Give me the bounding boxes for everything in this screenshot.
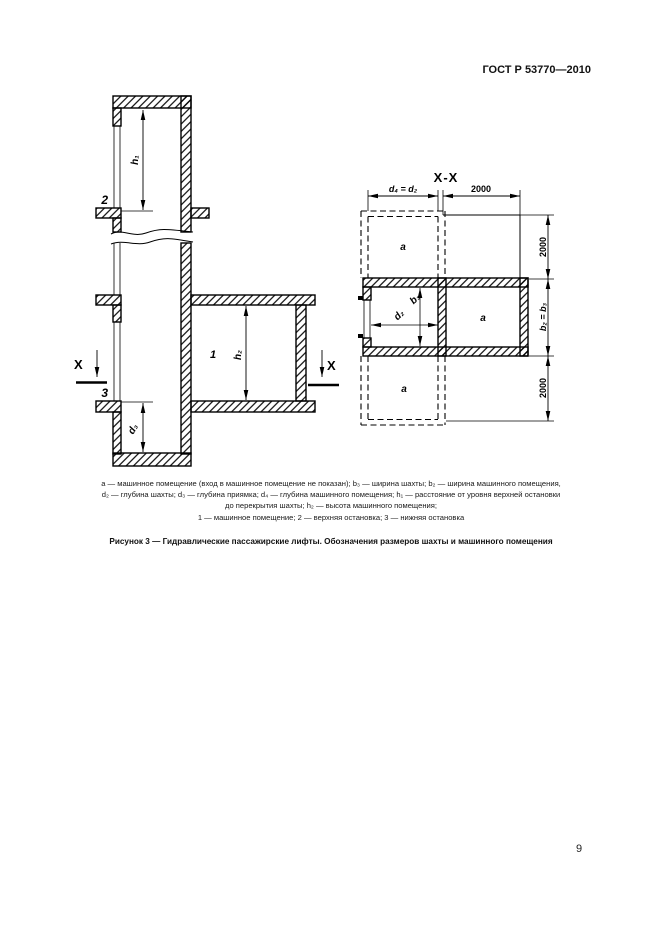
room-label-middle: а [480, 313, 486, 324]
landing-zone-outline [443, 215, 520, 278]
plan-right-dimensions: 2000 b₂ = b₃ 2000 [446, 215, 554, 421]
door-jamb-bottom [358, 334, 363, 338]
shaft-ceiling-slab [113, 96, 191, 108]
machine-room-floor-slab [191, 401, 315, 412]
upper-stop-floor-slab [96, 208, 121, 218]
legend-line: до перекрытия шахты; h₂ — высота машинно… [33, 500, 629, 511]
dim-b2-b3-label: b₂ = b₃ [538, 302, 548, 331]
section-mark-right: X [308, 350, 339, 385]
section-mark-left: X [74, 350, 107, 383]
page-number: 9 [576, 843, 582, 855]
lower-stop-label: 3 [101, 386, 108, 400]
room-label-top: а [400, 242, 406, 253]
figure-3-drawing: h₁ h₂ d₃ 2 3 1 X [0, 0, 661, 470]
dim-h2: h₂ [233, 306, 246, 400]
plan-view-title: X-X [434, 170, 459, 185]
section-mark-right-label: X [327, 358, 336, 373]
plan-top-dimensions: d₄ = d₂ 2000 [368, 184, 520, 215]
dim-b3-label: b₃ [408, 292, 423, 307]
dim-2000-top-label: 2000 [471, 184, 491, 194]
dim-2000-right-top-label: 2000 [538, 237, 548, 257]
pit-floor-slab [113, 453, 191, 466]
plan-walls [358, 278, 528, 356]
section-view: h₁ h₂ d₃ 2 3 1 X [74, 96, 339, 466]
figure-legend: а — машинное помещение (вход в машинное … [33, 478, 629, 523]
section-mark-left-label: X [74, 357, 83, 372]
dim-h2-label: h₂ [233, 350, 244, 360]
room-label-bottom: а [401, 384, 407, 395]
dim-shaft-width: b₃ [408, 288, 423, 346]
legend-line: 1 — машинное помещение; 2 — верхняя оста… [33, 512, 629, 523]
machine-room-number-label: 1 [210, 349, 216, 361]
upper-stop-label: 2 [100, 193, 108, 207]
plan-middle-wall [438, 278, 446, 356]
dim-d3: d₃ [121, 402, 153, 452]
document-page: ГОСТ Р 53770—2010 [0, 0, 661, 936]
dim-d2-label: d₂ [392, 308, 407, 323]
legend-line: а — машинное помещение (вход в машинное … [33, 478, 629, 489]
door-jamb-top [358, 296, 363, 300]
dim-h1-label: h₁ [130, 155, 141, 165]
plan-right-wall [520, 278, 528, 356]
shaft-walls-upper [96, 96, 209, 232]
plan-view: X-X [358, 170, 554, 425]
dim-d3-label: d₃ [126, 422, 141, 436]
dim-shaft-depth: d₂ [371, 308, 438, 325]
machine-room-right-wall [296, 305, 306, 401]
shaft-walls-lower [96, 243, 191, 466]
machine-room-ceiling-slab [191, 295, 315, 305]
lower-stop-floor-slab [96, 401, 121, 412]
dim-2000-right-bottom-label: 2000 [538, 378, 548, 398]
dim-d4-d2-label: d₄ = d₂ [389, 184, 418, 194]
dim-h1: h₁ [121, 110, 153, 211]
legend-line: d₂ — глубина шахты; d₃ — глубина приямка… [33, 489, 629, 500]
figure-title: Рисунок 3 — Гидравлические пассажирские … [33, 537, 629, 546]
